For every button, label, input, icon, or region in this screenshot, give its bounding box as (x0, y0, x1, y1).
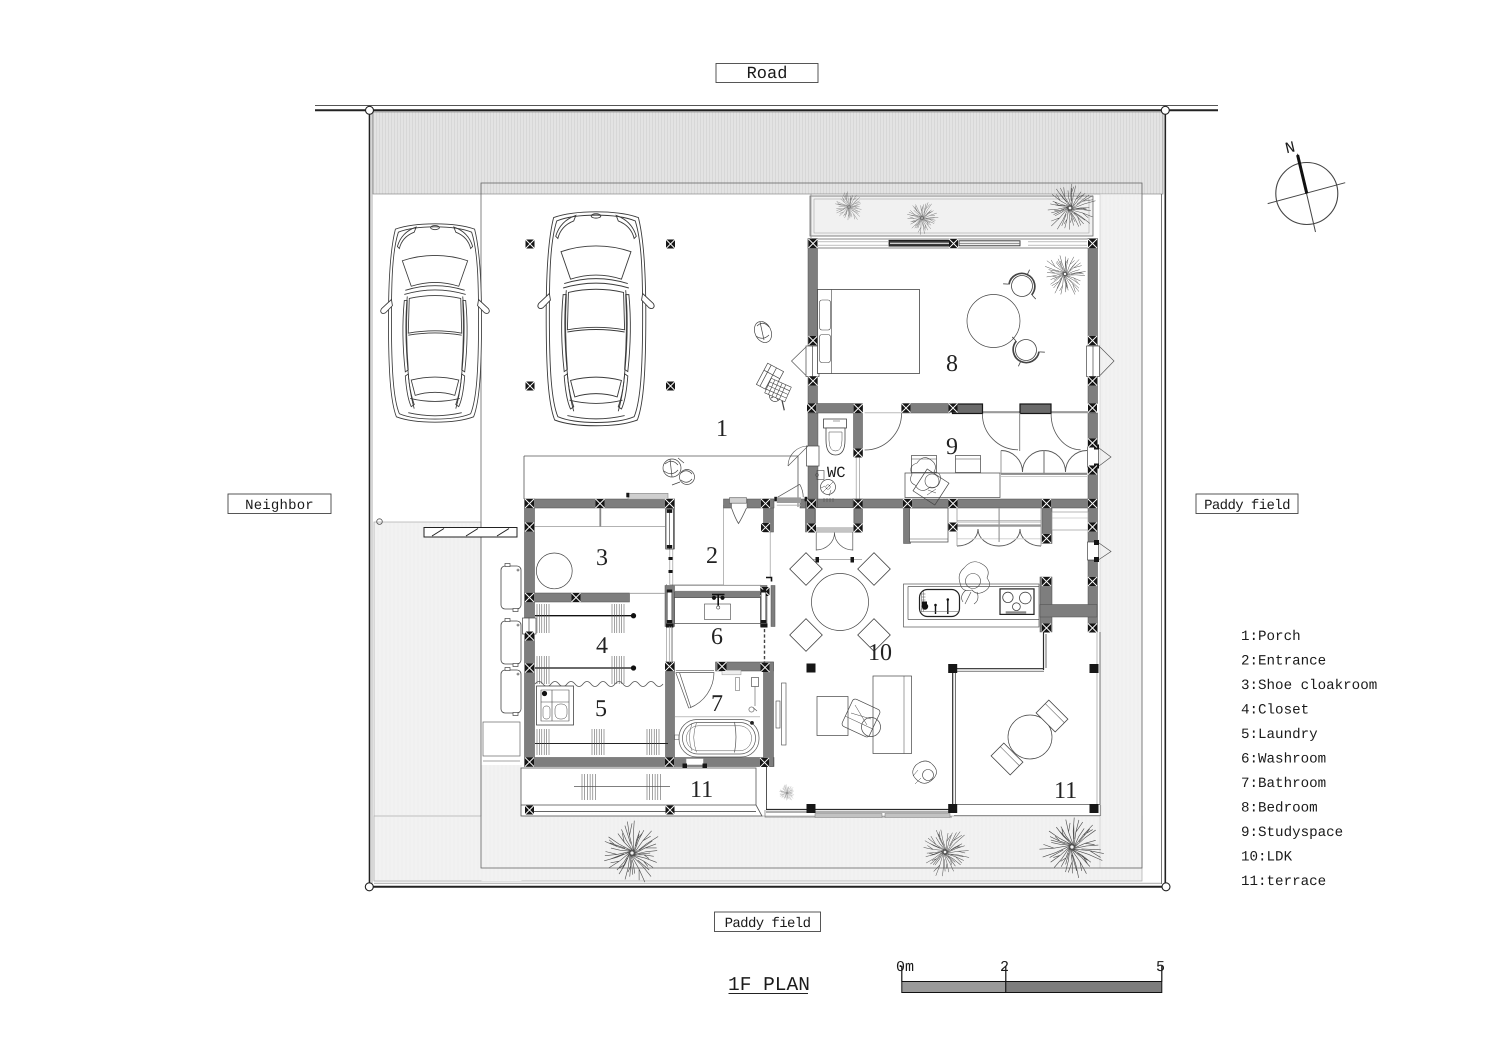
svg-text:3:Shoe cloakroom: 3:Shoe cloakroom (1241, 678, 1377, 694)
svg-text:Paddy field: Paddy field (725, 916, 811, 932)
svg-text:10:LDK: 10:LDK (1241, 850, 1293, 866)
svg-text:9:Studyspace: 9:Studyspace (1241, 825, 1343, 841)
svg-text:5: 5 (1156, 959, 1165, 976)
svg-text:WC: WC (827, 464, 846, 482)
svg-text:Road: Road (747, 65, 788, 84)
svg-text:8: 8 (946, 351, 958, 377)
svg-text:6:Washroom: 6:Washroom (1241, 752, 1326, 768)
svg-text:4:Closet: 4:Closet (1241, 703, 1309, 719)
svg-text:Paddy field: Paddy field (1204, 498, 1290, 514)
svg-text:1:Porch: 1:Porch (1241, 629, 1301, 645)
svg-text:3: 3 (596, 545, 608, 571)
svg-text:1F PLAN: 1F PLAN (728, 974, 810, 996)
svg-text:5:Laundry: 5:Laundry (1241, 727, 1318, 743)
svg-text:4: 4 (596, 633, 608, 659)
svg-text:Neighbor: Neighbor (245, 498, 314, 514)
svg-text:5: 5 (595, 696, 607, 722)
svg-text:11: 11 (1054, 778, 1077, 804)
svg-text:0m: 0m (896, 959, 914, 976)
svg-text:10: 10 (868, 640, 892, 666)
svg-text:8:Bedroom: 8:Bedroom (1241, 801, 1318, 817)
svg-text:6: 6 (711, 624, 723, 650)
svg-text:1: 1 (716, 416, 728, 442)
svg-text:2:Entrance: 2:Entrance (1241, 654, 1326, 670)
svg-text:2: 2 (706, 543, 718, 569)
svg-text:7: 7 (711, 691, 723, 717)
svg-text:7:Bathroom: 7:Bathroom (1241, 776, 1326, 792)
svg-text:11: 11 (690, 777, 713, 803)
svg-text:9: 9 (946, 434, 958, 460)
svg-text:11:terrace: 11:terrace (1241, 874, 1326, 890)
svg-text:2: 2 (1000, 959, 1009, 976)
